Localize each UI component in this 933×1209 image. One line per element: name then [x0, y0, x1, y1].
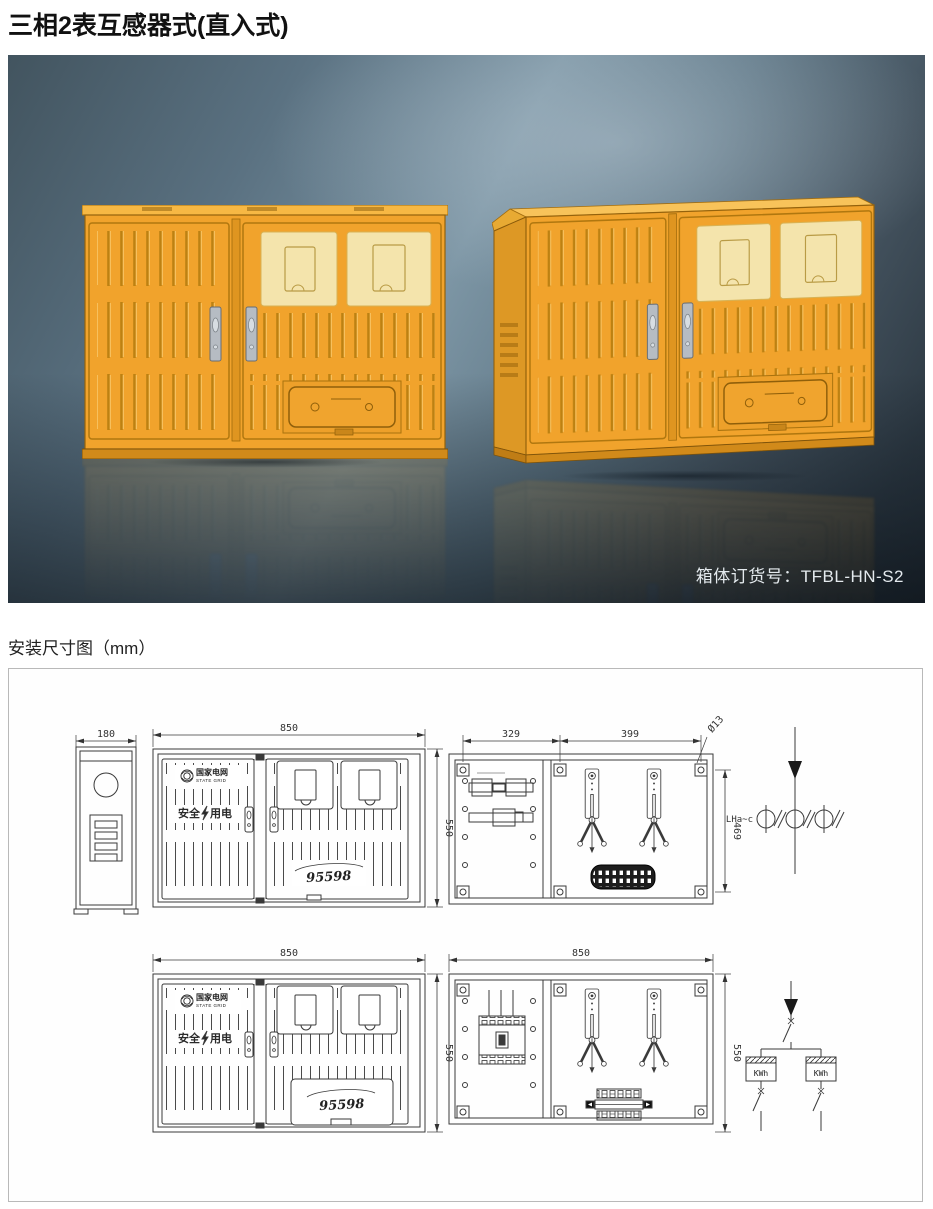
meter2-label: KWh — [814, 1069, 829, 1078]
meter1-label: KWh — [754, 1069, 769, 1078]
page-title: 三相2表互感器式(直入式) — [8, 6, 289, 42]
dim-width-bottom-internal: 850 — [572, 948, 590, 959]
hotline-logo-2: 95598 — [319, 1097, 365, 1114]
dim-width-bottom-front: 850 — [280, 948, 298, 959]
grid-logo-cn: 国家电网 — [196, 767, 228, 777]
dim-depth: 180 — [97, 729, 115, 740]
order-number-label: 箱体订货号：TFBL-HN-S2 — [696, 562, 904, 587]
box-reflection — [82, 456, 448, 603]
dim-height-bottom-internal: 550 — [731, 1044, 742, 1062]
side-view-drawing — [74, 735, 138, 914]
hotline-logo: 95598 — [306, 869, 352, 886]
meter-schematic — [746, 981, 836, 1131]
ct-label: LHa~c — [726, 815, 753, 825]
product-photo-panel: 箱体订货号：TFBL-HN-S2 — [8, 55, 925, 603]
dim-mount-w1: 329 — [502, 729, 520, 740]
catalog-page: 三相2表互感器式(直入式) — [0, 0, 933, 1209]
safety-slogan-left: 安全 — [178, 806, 201, 820]
dim-mount-w2: 399 — [621, 729, 639, 740]
internal-view-drawing-bottom — [449, 954, 731, 1132]
meter-box-perspective-photo — [492, 195, 878, 473]
internal-view-drawing-top — [449, 735, 731, 904]
ct-schematic — [757, 727, 844, 874]
drawings-section-title: 安装尺寸图（mm） — [8, 634, 155, 659]
dim-hole-dia: Ø13 — [705, 714, 726, 735]
grid-logo-en-2: STATE GRID — [196, 1003, 227, 1008]
meter-box-front-photo — [82, 205, 448, 459]
dimension-drawings-panel: 180 — [8, 668, 923, 1202]
dim-width-top: 850 — [280, 723, 298, 734]
safety-slogan-left-2: 安全 — [178, 1031, 201, 1045]
grid-logo-cn-2: 国家电网 — [196, 992, 228, 1002]
safety-slogan-right-2: 用电 — [210, 1031, 232, 1045]
grid-logo-en: STATE GRID — [196, 778, 227, 783]
safety-slogan-right: 用电 — [210, 806, 232, 820]
